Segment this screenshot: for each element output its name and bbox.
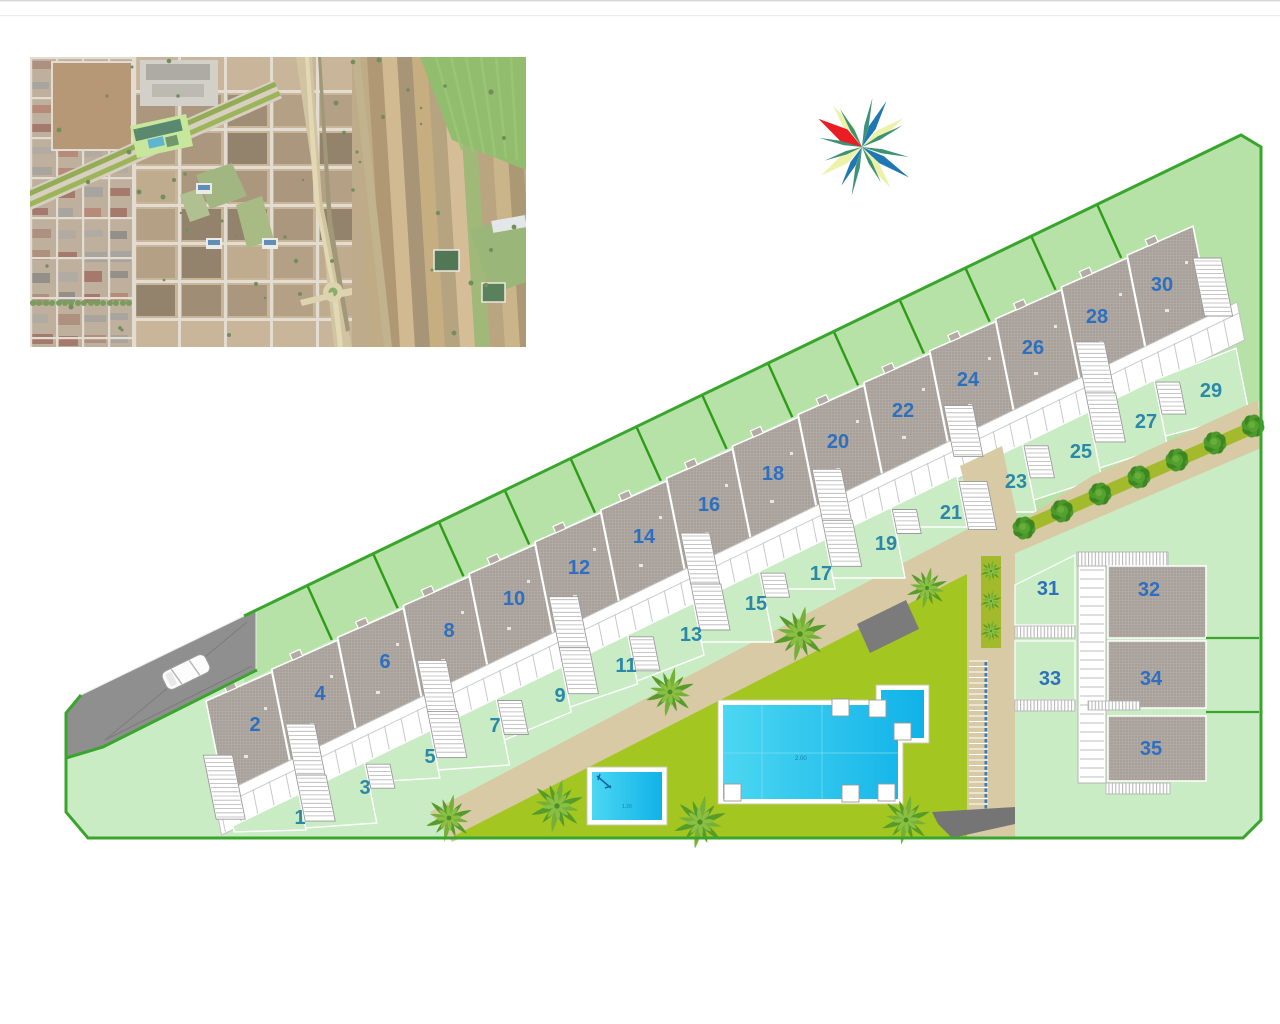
svg-text:9: 9 [554, 685, 565, 707]
svg-text:12: 12 [568, 557, 590, 579]
svg-text:29: 29 [1200, 380, 1222, 402]
svg-text:14: 14 [633, 526, 656, 548]
svg-text:20: 20 [827, 431, 849, 453]
svg-text:18: 18 [762, 463, 784, 485]
svg-text:17: 17 [810, 563, 832, 585]
svg-text:4: 4 [314, 683, 326, 705]
svg-text:5: 5 [424, 746, 435, 768]
svg-text:1: 1 [294, 807, 305, 829]
svg-text:7: 7 [489, 715, 500, 737]
svg-text:2: 2 [249, 714, 260, 736]
svg-text:33: 33 [1039, 668, 1061, 690]
svg-text:3: 3 [359, 777, 370, 799]
svg-text:21: 21 [940, 502, 962, 524]
svg-text:19: 19 [875, 533, 897, 555]
svg-text:10: 10 [503, 588, 525, 610]
svg-text:24: 24 [957, 369, 980, 391]
svg-text:35: 35 [1140, 738, 1162, 760]
svg-text:13: 13 [680, 624, 702, 646]
svg-text:23: 23 [1005, 471, 1027, 493]
svg-text:28: 28 [1086, 306, 1108, 328]
svg-text:30: 30 [1151, 274, 1173, 296]
svg-text:15: 15 [745, 593, 767, 615]
svg-text:11: 11 [615, 655, 636, 677]
svg-text:34: 34 [1140, 668, 1163, 690]
svg-text:26: 26 [1022, 337, 1044, 359]
svg-text:27: 27 [1135, 411, 1157, 433]
svg-text:25: 25 [1070, 441, 1092, 463]
svg-text:6: 6 [379, 651, 390, 673]
svg-text:1.20: 1.20 [622, 804, 632, 810]
svg-text:31: 31 [1037, 578, 1059, 600]
svg-text:8: 8 [443, 620, 454, 642]
svg-text:22: 22 [892, 400, 914, 422]
svg-text:16: 16 [698, 494, 720, 516]
svg-text:32: 32 [1138, 579, 1160, 601]
svg-text:2.00: 2.00 [795, 756, 807, 762]
